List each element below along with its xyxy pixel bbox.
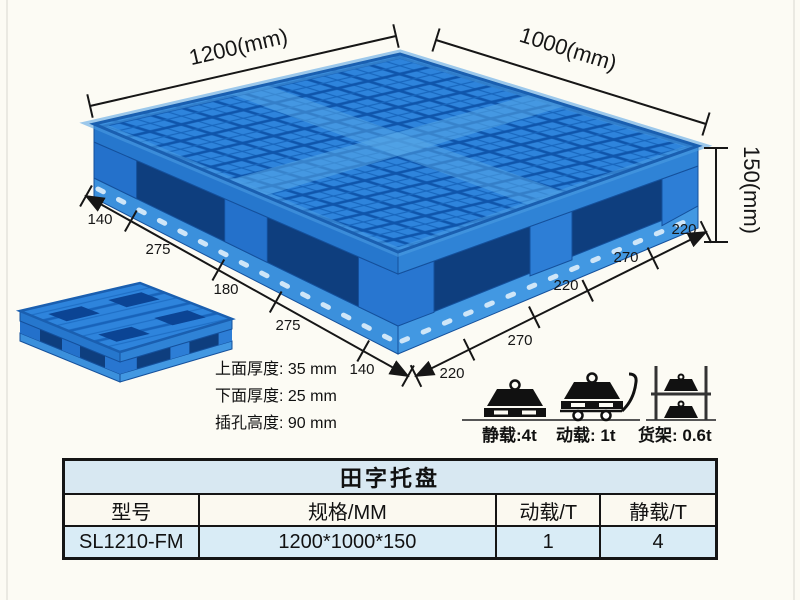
dim-label-150: 150(mm): [739, 146, 764, 234]
spec-table: 田字托盘 型号 规格/MM 动载/T 静载/T SL1210-FM 1200*1…: [62, 458, 718, 560]
header-model: 型号: [65, 495, 200, 525]
spec-table-header-row: 型号 规格/MM 动载/T 静载/T: [65, 495, 715, 527]
dim-seg-right-1: 220: [439, 365, 464, 382]
dim-seg-right-4: 270: [613, 249, 638, 266]
dim-seg-right-2: 270: [507, 332, 532, 349]
small-pallet-image: [20, 283, 232, 382]
load-capacity-icons: 静载:4t 动载: 1t 货架: 0.6t: [462, 366, 716, 445]
rack-load-label: 货架: 0.6t: [638, 425, 712, 445]
spec-table-title: 田字托盘: [65, 461, 715, 495]
dynamic-load-label: 动载: 1t: [556, 425, 616, 445]
spec-fork-height: 插孔高度: 90 mm: [215, 414, 337, 432]
spec-top-thickness: 上面厚度: 35 mm: [215, 360, 337, 378]
spec-sheet: 1200(mm) 1000(mm) 150(mm) 140 275 180 27…: [0, 0, 800, 600]
dim-seg-left-2: 275: [145, 241, 170, 258]
static-load-label: 静载:4t: [482, 425, 537, 445]
spec-bottom-thickness: 下面厚度: 25 mm: [215, 387, 337, 405]
dim-seg-right-3: 220: [553, 277, 578, 294]
header-dynamic-load: 动载/T: [497, 495, 601, 525]
dim-seg-left-4: 275: [275, 317, 300, 334]
header-static-load: 静载/T: [601, 495, 715, 525]
dim-seg-left-1: 140: [87, 211, 112, 228]
cell-model: SL1210-FM: [65, 527, 200, 557]
header-spec-mm: 规格/MM: [200, 495, 498, 525]
static-load-icon: [484, 381, 546, 418]
cell-spec-mm: 1200*1000*150: [200, 527, 498, 557]
dim-seg-right-5: 220: [671, 221, 696, 238]
dynamic-load-icon: [560, 374, 636, 421]
product-diagram: 1200(mm) 1000(mm) 150(mm) 140 275 180 27…: [0, 0, 800, 455]
dim-seg-left-5: 140: [349, 361, 374, 378]
rack-load-icon: [651, 366, 711, 420]
dim-seg-left-3: 180: [213, 281, 238, 298]
spec-table-data-row: SL1210-FM 1200*1000*150 1 4: [65, 527, 715, 557]
dim-label-1000: 1000(mm): [517, 22, 620, 76]
cell-static-load: 4: [601, 527, 715, 557]
cell-dynamic-load: 1: [497, 527, 601, 557]
